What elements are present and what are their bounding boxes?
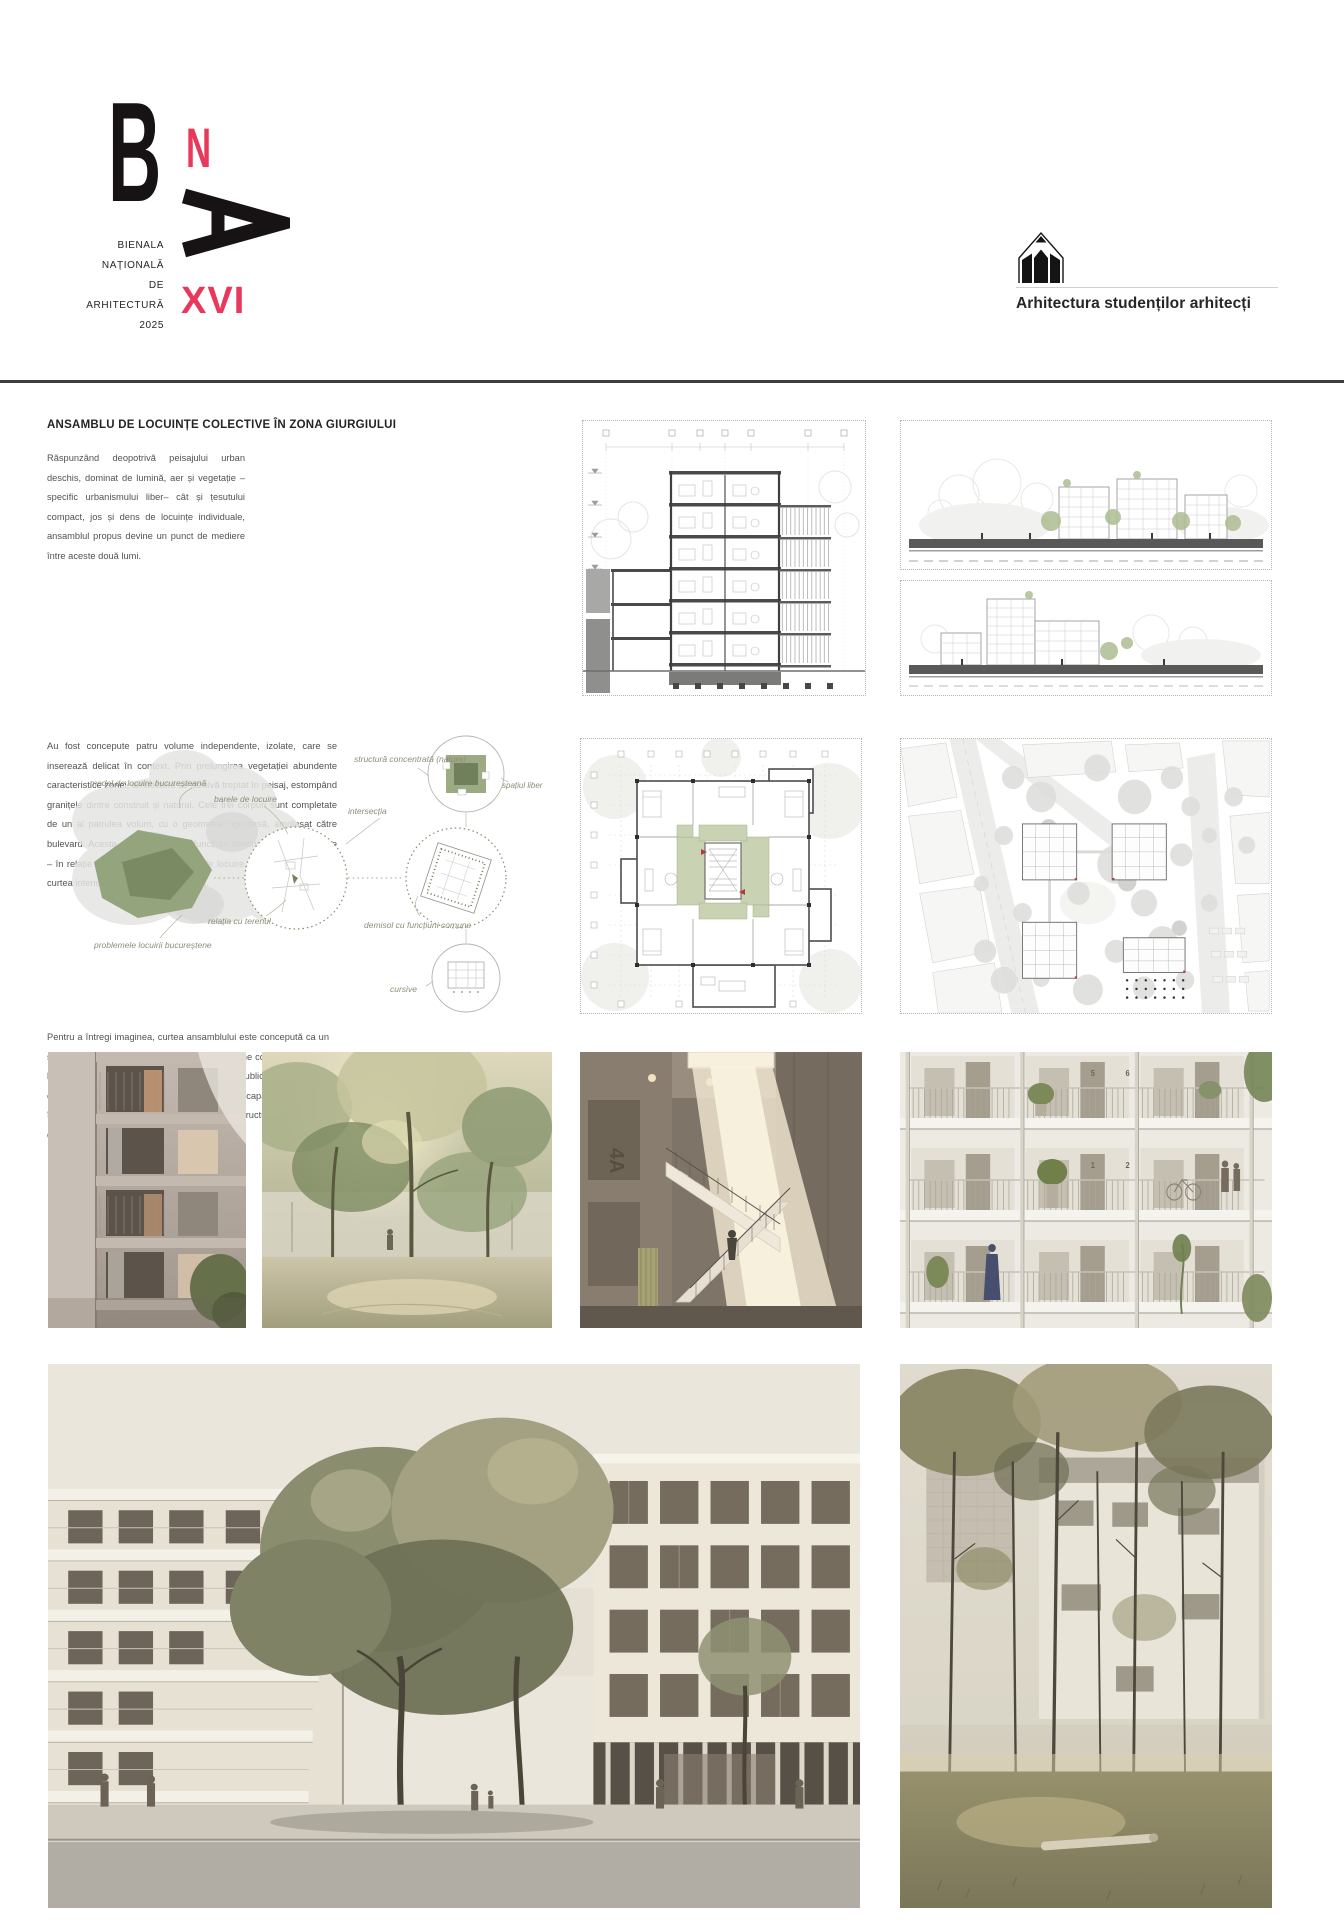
structure-circle [428,736,504,812]
label-walkway: cursive [390,984,417,994]
apartment-number: 5 [1091,1069,1096,1078]
project-title: ANSAMBLU DE LOCUINȚE COLECTIVE ÎN ZONA G… [47,419,553,431]
label-structure: structură concentrată (natura) [354,754,466,764]
logo-letter-a-icon [178,186,290,260]
partner-rule [1016,287,1278,288]
render-facade-dusk [48,1052,246,1328]
logo-edition: XVI [181,282,245,320]
label-terrain: relația cu terenul [208,916,272,926]
person-silhouette [387,1229,393,1250]
label-model: model de locuire bucureșteană [90,778,207,788]
street-elevation-drawing-1 [900,420,1272,570]
render-courtyard-trees [262,1052,552,1328]
poster-page: B N BIENALA NAȚIONALĂ DE ARHITECTURĂ 202… [0,0,1344,1920]
logo-name-line: 2025 [60,316,164,336]
label-problems: problemele locuirii bucureștene [93,940,212,950]
header-divider [0,380,1344,383]
concept-diagram: model de locuire bucureșteană problemele… [42,712,554,1020]
stairwell-wall-mark: 4A [605,1148,627,1174]
render-stairwell-light: 4A [580,1052,862,1328]
label-intersection: intersecția [348,806,387,816]
label-free-space: spațiul liber [502,781,543,790]
building-section-drawing [582,420,866,696]
logo-name: BIENALA NAȚIONALĂ DE ARHITECTURĂ 2025 [60,236,164,336]
render-balcony-facade: 5 6 1 2 [900,1052,1272,1328]
floorplan-svg [581,739,861,1013]
label-bars: barele de locuire [214,794,277,804]
logo-letter-n: N [186,120,211,176]
logo-name-line: DE [60,276,164,296]
elevation1-svg [901,421,1271,569]
floor-plan-drawing [580,738,862,1014]
label-basement: demisol cu funcțiuni comune [364,920,472,930]
elevation2-svg [901,581,1271,695]
partner-label: Arhitectura studenților arhitecți [1016,295,1296,313]
site-sketch-circle [406,828,506,928]
apartment-number: 1 [1091,1161,1096,1170]
street-elevation-drawing-2 [900,580,1272,696]
concept-diagram-svg: model de locuire bucureșteană problemele… [42,712,554,1020]
section-svg [583,421,865,695]
project-paragraph-1: Răspunzând deopotrivă peisajului urban d… [47,449,245,725]
render-forest-view [900,1364,1272,1908]
apartment-number: 2 [1125,1161,1129,1170]
pencil-house-icon [1016,230,1066,286]
balcony-rows [911,1056,1244,1302]
logo-name-line: NAȚIONALĂ [60,256,164,276]
logo-name-line: BIENALA [60,236,164,256]
logo-letter-b: B [108,82,161,224]
apartment-number: 6 [1125,1069,1130,1078]
site-plan-drawing [900,738,1272,1014]
siteplan-svg [901,739,1271,1013]
logo-name-line: ARHITECTURĂ [60,296,164,316]
walkway-circle [432,944,500,1012]
render-street-view [48,1364,860,1908]
neighbourhood-circle [245,827,347,929]
